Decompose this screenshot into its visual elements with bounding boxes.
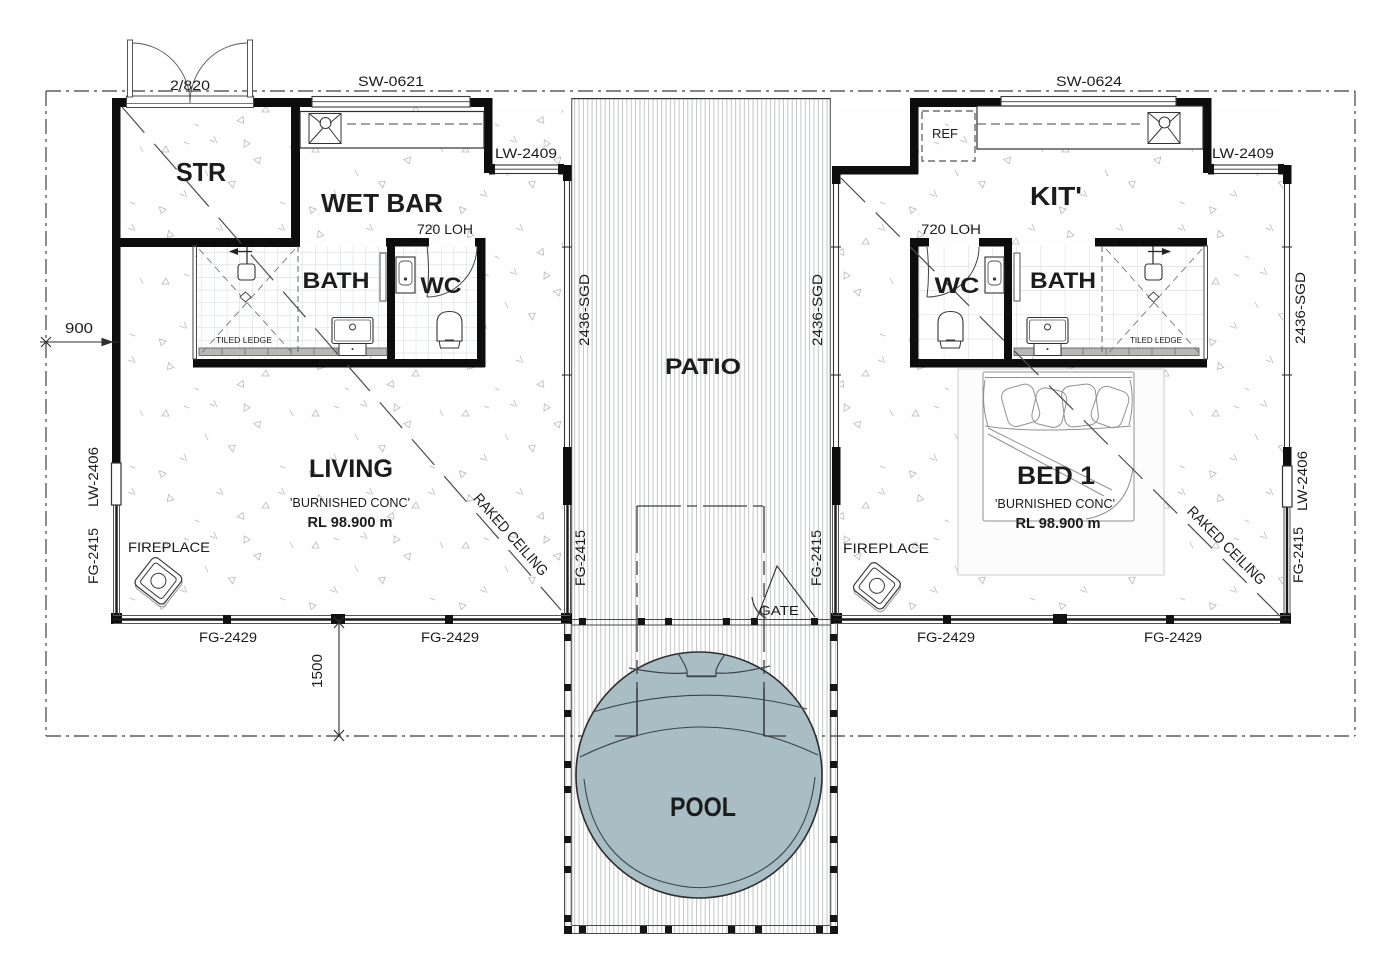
svg-text:BATH: BATH [303, 268, 370, 293]
svg-text:WC: WC [421, 273, 462, 298]
svg-text:FG-2429: FG-2429 [199, 630, 257, 645]
svg-text:BATH: BATH [1030, 268, 1096, 293]
svg-text:TILED LEDGE: TILED LEDGE [1130, 335, 1182, 345]
svg-text:GATE: GATE [759, 603, 799, 618]
svg-text:SW-0624: SW-0624 [1056, 73, 1122, 89]
svg-text:SW-0621: SW-0621 [358, 73, 424, 89]
svg-text:2436-SGD: 2436-SGD [810, 274, 825, 346]
svg-text:720 LOH: 720 LOH [417, 221, 473, 237]
svg-text:FG-2429: FG-2429 [917, 630, 975, 645]
svg-text:KIT': KIT' [1030, 181, 1082, 211]
svg-text:FIREPLACE: FIREPLACE [843, 540, 929, 556]
svg-text:FG-2415: FG-2415 [573, 530, 588, 586]
svg-text:WC: WC [935, 273, 980, 298]
svg-text:FG-2429: FG-2429 [421, 630, 479, 645]
svg-text:1500: 1500 [310, 654, 326, 688]
svg-text:LW-2406: LW-2406 [86, 447, 101, 507]
svg-text:FG-2415: FG-2415 [1291, 527, 1306, 583]
svg-text:TILED LEDGE: TILED LEDGE [216, 335, 272, 345]
svg-text:RL 98.900 m: RL 98.900 m [1016, 516, 1101, 532]
svg-text:LW-2406: LW-2406 [1295, 451, 1310, 511]
svg-text:LIVING: LIVING [309, 455, 393, 483]
svg-text:FIREPLACE: FIREPLACE [128, 539, 210, 555]
svg-text:900: 900 [65, 321, 93, 337]
svg-text:2/820: 2/820 [170, 77, 210, 93]
svg-text:WET BAR: WET BAR [321, 188, 443, 218]
svg-text:POOL: POOL [670, 792, 736, 822]
svg-text:PATIO: PATIO [665, 354, 741, 379]
svg-text:2436-SGD: 2436-SGD [577, 274, 592, 346]
svg-text:FG-2415: FG-2415 [86, 528, 101, 584]
svg-text:STR: STR [176, 157, 226, 187]
svg-text:FG-2415: FG-2415 [809, 530, 824, 586]
svg-text:RL 98.900 m: RL 98.900 m [308, 515, 393, 531]
svg-text:BED 1: BED 1 [1017, 462, 1095, 490]
svg-text:'BURNISHED CONC': 'BURNISHED CONC' [290, 495, 410, 510]
svg-text:720 LOH: 720 LOH [921, 221, 981, 237]
svg-text:'BURNISHED CONC': 'BURNISHED CONC' [995, 496, 1115, 511]
svg-text:REF: REF [932, 127, 958, 141]
svg-text:LW-2409: LW-2409 [1212, 146, 1274, 161]
svg-text:FG-2429: FG-2429 [1144, 630, 1202, 645]
svg-text:2436-SGD: 2436-SGD [1293, 272, 1308, 344]
svg-text:LW-2409: LW-2409 [495, 146, 557, 161]
